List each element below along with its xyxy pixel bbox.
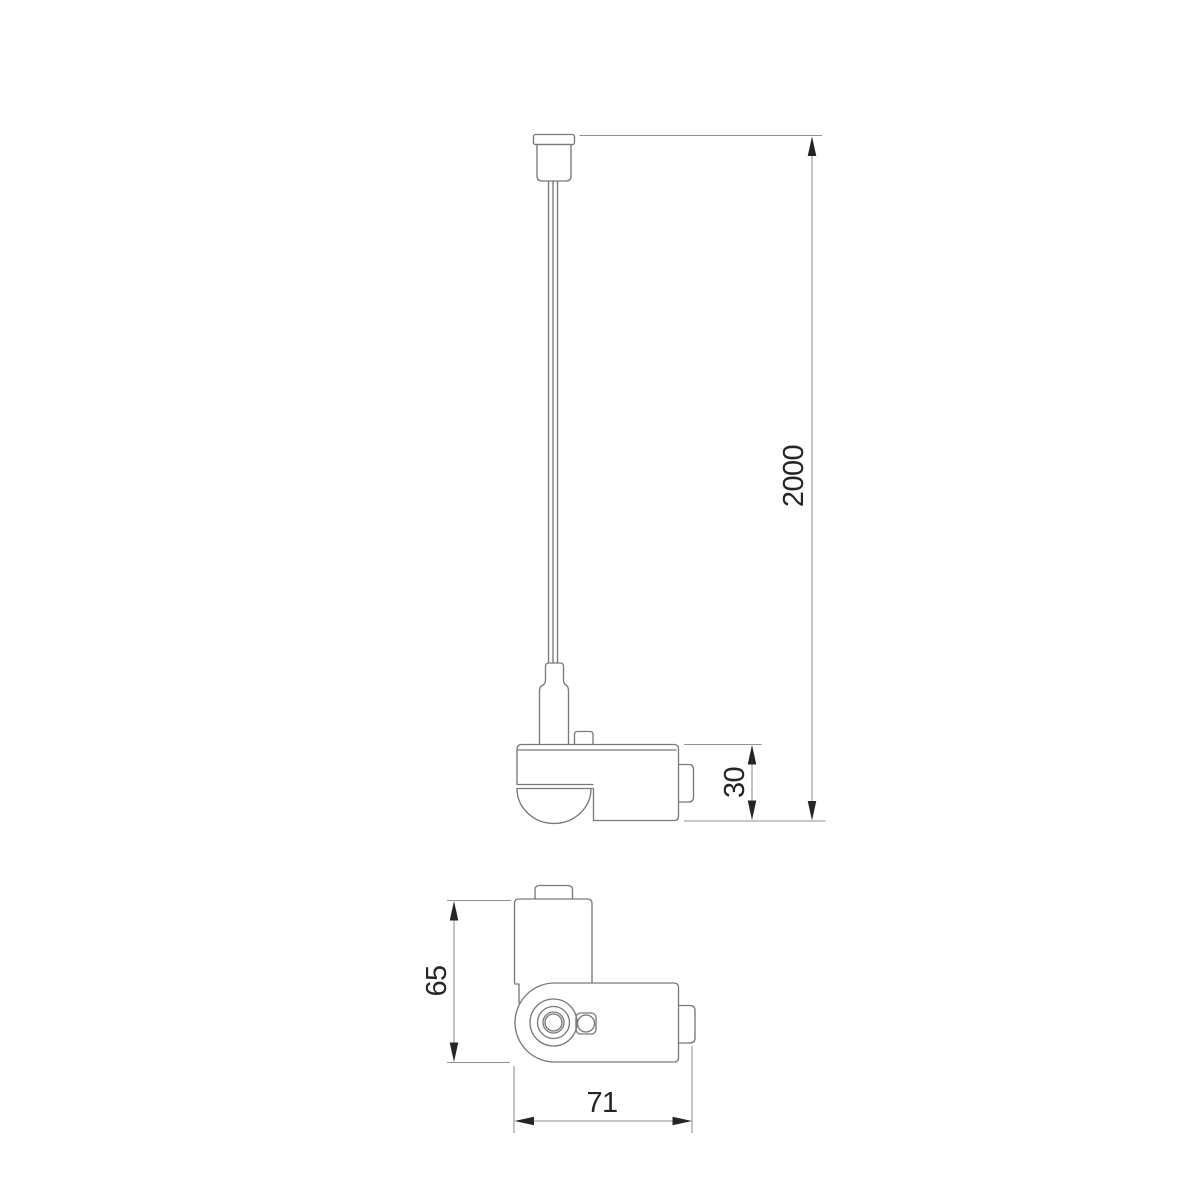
ceiling-canopy-flange xyxy=(534,135,575,145)
ceiling-canopy-body xyxy=(537,145,571,182)
horizontal-housing xyxy=(515,983,679,1062)
arrow-up-icon xyxy=(748,745,757,765)
body-height-label: 30 xyxy=(719,767,751,798)
arrow-down-icon xyxy=(748,801,757,821)
top-release-button xyxy=(575,732,594,745)
bottom-view xyxy=(515,886,696,1063)
overall-height-label: 65 xyxy=(421,965,453,996)
adapter-body-outline xyxy=(517,745,679,821)
cable-strain-relief xyxy=(540,663,569,744)
rotary-knob-dome xyxy=(517,789,591,824)
overall-width-label: 71 xyxy=(586,1087,617,1119)
side-view xyxy=(517,135,694,824)
side-connector-tab xyxy=(679,765,694,803)
technical-drawing: 2000 30 65 71 xyxy=(0,0,1200,1200)
technical-drawing-canvas: 2000 30 65 71 xyxy=(0,0,1200,1200)
arrow-right-icon xyxy=(673,1117,693,1126)
top-tab xyxy=(535,886,573,900)
suspension-cable xyxy=(549,181,558,663)
adapter-body-groove-lines xyxy=(517,785,594,789)
vertical-housing xyxy=(515,899,593,984)
arrow-up-icon xyxy=(450,901,459,921)
end-connector-tab xyxy=(679,1006,696,1044)
arrow-up-icon xyxy=(808,137,817,157)
arrow-down-icon xyxy=(450,1043,459,1063)
suspension-length-label: 2000 xyxy=(778,445,810,507)
vertical-housing-step xyxy=(515,984,520,1004)
arrow-down-icon xyxy=(808,801,817,821)
arrow-left-icon xyxy=(515,1117,535,1126)
